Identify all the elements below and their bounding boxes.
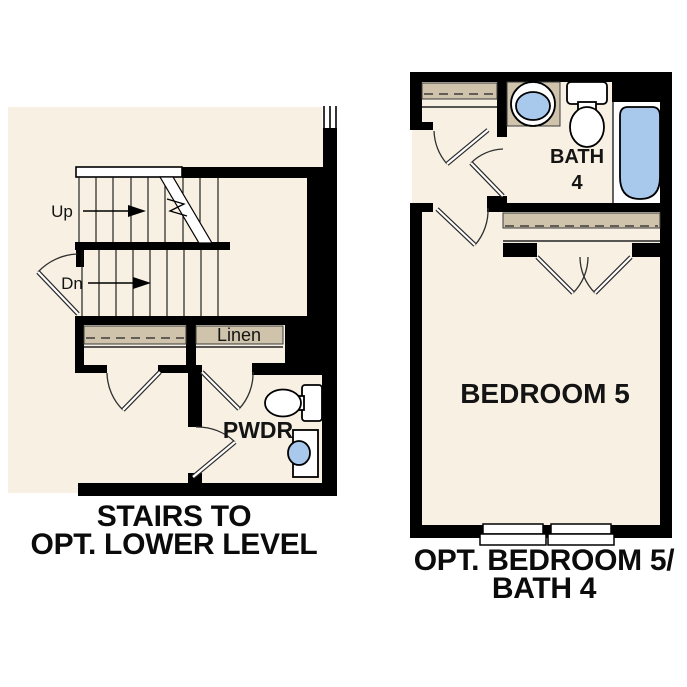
window-icon [480, 524, 546, 545]
toilet-icon [567, 82, 607, 147]
left-plan-caption-line1: STAIRS TO [12, 503, 336, 531]
pwdr-label: PWDR [223, 417, 294, 443]
vanity-sink-icon [507, 82, 560, 126]
left-plan-caption-line2: OPT. LOWER LEVEL [12, 531, 336, 559]
right-plan-caption: OPT. BEDROOM 5/ BATH 4 [398, 547, 687, 603]
linen-label: Linen [217, 325, 261, 345]
dn-label: Dn [61, 274, 83, 293]
window-break-icon [322, 106, 338, 128]
floorplan-page: Up Dn Linen PWDR [0, 0, 687, 687]
bath-label-line2: 4 [571, 172, 583, 194]
stair-handrail [76, 167, 182, 177]
window-icon [548, 524, 614, 545]
bath-label-line1: BATH [550, 146, 604, 168]
right-plan-caption-line1: OPT. BEDROOM 5/ [398, 547, 687, 575]
right-plan-caption-line2: BATH 4 [398, 575, 687, 603]
right-plan: BATH 4 BEDROOM 5 [410, 72, 672, 545]
left-plan: Up Dn Linen PWDR [8, 106, 338, 496]
left-plan-caption: STAIRS TO OPT. LOWER LEVEL [12, 503, 336, 559]
understair-closet-shelf [84, 326, 186, 347]
up-label: Up [51, 202, 73, 221]
bedroom-label: BEDROOM 5 [460, 378, 630, 409]
